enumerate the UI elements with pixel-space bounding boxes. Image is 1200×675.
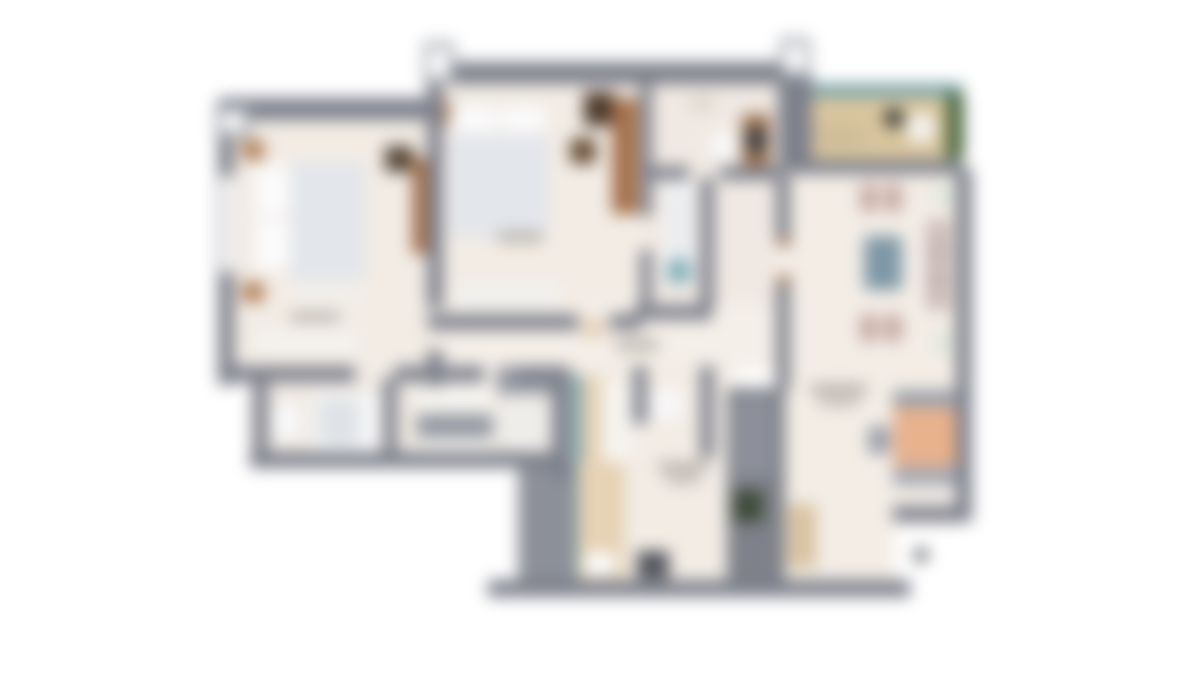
bed1-low-dresser (258, 332, 354, 354)
wall-wc-west (633, 366, 647, 424)
balcony-floor (800, 92, 958, 162)
bed2-dark-dresser (584, 92, 614, 126)
wall-bathroom-divider-1 (643, 166, 689, 180)
bed1-window (221, 176, 233, 272)
bed2-bench (458, 284, 558, 308)
tv-console (788, 504, 816, 568)
wall-bathblock-east (552, 366, 570, 478)
sofa-body (893, 407, 957, 466)
wall-living-east (956, 168, 972, 522)
wall-bedroom1-top (218, 98, 443, 120)
entry-label-smudge-2 (666, 476, 700, 484)
column-stub-bedroom1-inner (222, 112, 244, 132)
dining-chair-4 (884, 314, 902, 342)
bedroom1-label-smudge (290, 312, 340, 321)
wall-bedroom1-south-1 (218, 366, 355, 382)
kitchen-glass-upper (573, 375, 581, 475)
dining-chair-1 (860, 184, 878, 212)
bed1-nightstand-top (242, 140, 264, 160)
bed2-pillow-right (501, 107, 545, 132)
wall-living-west-upper (776, 174, 790, 238)
bathroom-1-vanity-inner (318, 398, 360, 446)
sofa-back (893, 390, 957, 407)
wall-bedroom1-east-upper (427, 62, 443, 308)
bed1-nightstand-bottom (242, 282, 264, 302)
wall-bathroom-b-south (635, 305, 712, 320)
living-label-smudge-2 (818, 398, 860, 406)
column-stub-shaft-inner (785, 44, 805, 72)
hall-wardrobe-top (417, 384, 493, 411)
entry-label-smudge-1 (658, 462, 708, 472)
wall-bathblock-south (250, 452, 562, 468)
wall-bathroom-b-east (700, 178, 714, 308)
wall-bathroom-divider-2 (720, 166, 780, 180)
wall-bedroom2-east-upper (640, 84, 652, 216)
hall-label-smudge (615, 340, 659, 350)
wall-living-step (893, 506, 971, 522)
living-door-jamb-top (778, 238, 790, 247)
wall-bathblock-divider (383, 378, 397, 462)
balcony-chair (908, 114, 934, 142)
balcony-plant-pot (884, 108, 904, 128)
bathroom-a-toilet (710, 132, 736, 160)
bedroom2-label-smudge (497, 232, 543, 242)
bed2-duvet (450, 134, 548, 238)
floor-plan-image (0, 0, 1200, 675)
sideboard-divider-2 (926, 278, 950, 282)
bathroom-b-toilet (666, 258, 692, 284)
utility-shaft-inner (733, 396, 773, 476)
bed2-wardrobe (612, 98, 638, 214)
wall-living-west-lower (776, 284, 790, 390)
outside-marker-dot (914, 548, 928, 562)
bed1-duvet (291, 162, 365, 280)
dining-plant-top (932, 184, 954, 206)
bathroom-a-sink (746, 128, 766, 152)
bed2-door-swing (580, 318, 606, 338)
sofa-front (893, 466, 957, 486)
wall-bottom (488, 580, 910, 597)
bathroom-a-shelf (690, 96, 714, 110)
bathroom-1-toilet (274, 402, 300, 440)
dining-chair-3 (860, 314, 878, 342)
bed1-dresser (385, 146, 413, 172)
floor-plan-canvas (0, 0, 1200, 675)
dining-table (864, 236, 902, 290)
wall-wc-east (700, 366, 714, 458)
wall-bathblock-west (253, 380, 268, 462)
wall-under-balcony (788, 160, 962, 174)
wall-bedroom2-south-1 (428, 314, 578, 330)
shower-disc (495, 394, 551, 452)
living-label-smudge-1 (810, 384, 868, 394)
bed1-bench (293, 284, 355, 304)
living-door-jamb-bottom (778, 275, 790, 284)
column-stub-bedroom2-inner (429, 48, 449, 78)
wall-bedroom2-top (443, 62, 793, 84)
bed1-pillow-bottom (255, 220, 289, 270)
kitchen-counter-white (603, 382, 631, 466)
balcony-glass-rail (796, 84, 962, 96)
kitchen-sink (585, 552, 615, 576)
wall-bedroom1-south-2 (395, 366, 484, 382)
wall-shaft-top (778, 74, 812, 170)
dining-chair-2 (884, 184, 902, 212)
stair-block (518, 462, 574, 582)
bed1-pillow-top (255, 166, 289, 216)
entry-door (637, 551, 669, 579)
living-sideboard (926, 220, 950, 310)
dining-plant-bottom (932, 332, 954, 354)
kitchen-counter-upper (582, 377, 602, 465)
sideboard-divider-1 (926, 250, 950, 254)
balcony-plants (946, 92, 964, 160)
balcony-table (818, 128, 862, 146)
sofa-ottoman (868, 426, 890, 454)
bed1-wardrobe (412, 158, 428, 254)
fridge (733, 490, 763, 522)
bed2-pillow-left (453, 107, 497, 132)
bed2-side-chair (570, 138, 596, 164)
wc-fixture (650, 390, 682, 420)
hall-wardrobe-mid (417, 414, 493, 438)
